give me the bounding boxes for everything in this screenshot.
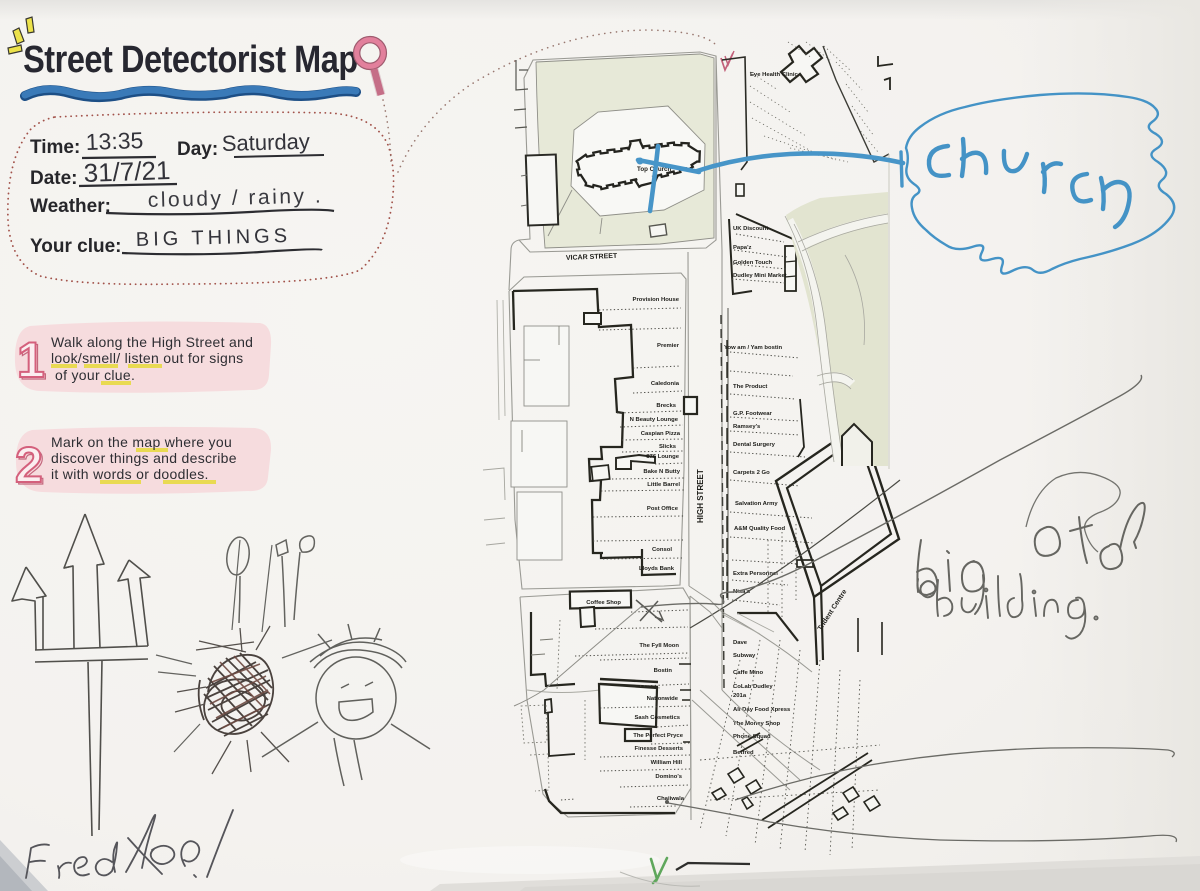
svg-text:The Product: The Product: [733, 384, 767, 390]
svg-text:13:35: 13:35: [85, 127, 143, 155]
svg-text:The Fyll Moon: The Fyll Moon: [639, 643, 679, 649]
svg-text:Date:: Date:: [30, 168, 78, 189]
svg-text:Dental Surgery: Dental Surgery: [733, 442, 776, 448]
svg-text:Carpets 2 Go: Carpets 2 Go: [733, 470, 770, 476]
svg-text:The Perfect Pryce: The Perfect Pryce: [633, 733, 683, 739]
svg-text:Eye Health Clinic: Eye Health Clinic: [750, 72, 799, 78]
svg-text:Bake N Butty: Bake N Butty: [643, 469, 680, 475]
svg-text:Yow am / Yam bostin: Yow am / Yam bostin: [724, 345, 782, 351]
svg-text:31/7/21: 31/7/21: [83, 155, 171, 188]
svg-text:201a: 201a: [733, 693, 747, 699]
svg-text:Post Office: Post Office: [647, 506, 679, 512]
svg-text:Caffe Mino: Caffe Mino: [733, 670, 764, 676]
svg-text:Ramsey's: Ramsey's: [733, 424, 761, 430]
svg-text:Domino's: Domino's: [655, 774, 682, 780]
svg-text:Lloyds Bank: Lloyds Bank: [639, 566, 675, 572]
svg-text:Chaiiwala: Chaiiwala: [657, 796, 685, 802]
svg-text:Weather:: Weather:: [30, 196, 111, 217]
svg-text:William Hill: William Hill: [651, 760, 683, 766]
svg-text:Subway: Subway: [733, 653, 756, 659]
svg-text:876 Lounge: 876 Lounge: [646, 454, 679, 460]
svg-text:Walk along the High Street and: Walk along the High Street and: [51, 334, 253, 350]
svg-text:cloudy / rainy .: cloudy / rainy .: [148, 184, 324, 212]
svg-text:CoLab Dudley: CoLab Dudley: [733, 684, 773, 690]
svg-text:Bostin: Bostin: [654, 668, 673, 674]
svg-text:Sash Cosmetics: Sash Cosmetics: [634, 715, 680, 721]
svg-text:Dudley Mini Market: Dudley Mini Market: [733, 273, 787, 279]
svg-text:Papa'z: Papa'z: [733, 245, 751, 251]
svg-text:N Beauty Lounge: N Beauty Lounge: [630, 417, 679, 423]
svg-text:Mark on the map where you: Mark on the map where you: [51, 434, 232, 450]
svg-text:Time:: Time:: [30, 137, 80, 158]
svg-text:BIG THINGS: BIG THINGS: [136, 225, 292, 251]
svg-text:Golden Touch: Golden Touch: [733, 260, 773, 266]
svg-text:Provision House: Provision House: [633, 297, 680, 303]
svg-text:of your clue.: of your clue.: [55, 367, 135, 383]
svg-text:HIGH STREET: HIGH STREET: [696, 469, 705, 523]
svg-text:Saturday: Saturday: [221, 129, 310, 156]
svg-text:Day:: Day:: [177, 139, 218, 160]
svg-text:Coffee Shop: Coffee Shop: [586, 600, 621, 606]
svg-text:1: 1: [17, 332, 45, 388]
svg-text:Dave: Dave: [733, 640, 748, 646]
svg-text:Street Detectorist Map: Street Detectorist Map: [23, 39, 358, 81]
svg-text:UK Discount: UK Discount: [733, 226, 768, 232]
svg-text:Caspian Pizza: Caspian Pizza: [641, 431, 681, 437]
svg-text:Your clue:: Your clue:: [30, 236, 122, 257]
svg-text:it with words or doodles.: it with words or doodles.: [51, 466, 209, 482]
svg-text:Salvation Army: Salvation Army: [735, 501, 778, 507]
svg-text:Caledonia: Caledonia: [651, 381, 680, 387]
svg-text:Nationwide: Nationwide: [647, 696, 679, 702]
svg-text:discover things and describe: discover things and describe: [51, 450, 237, 466]
svg-text:look/smell/ listen out for sig: look/smell/ listen out for signs: [51, 350, 243, 366]
svg-text:Slicks: Slicks: [659, 444, 677, 450]
svg-text:Brecks: Brecks: [656, 403, 676, 409]
svg-text:Consol: Consol: [652, 547, 672, 553]
svg-text:2: 2: [15, 437, 43, 493]
svg-text:Finesse Desserts: Finesse Desserts: [635, 746, 684, 752]
svg-text:Little Barrel: Little Barrel: [647, 482, 680, 488]
svg-text:A&M Quality Food: A&M Quality Food: [734, 526, 785, 532]
svg-text:G.P. Footwear: G.P. Footwear: [733, 411, 773, 417]
svg-text:Premier: Premier: [657, 343, 680, 349]
